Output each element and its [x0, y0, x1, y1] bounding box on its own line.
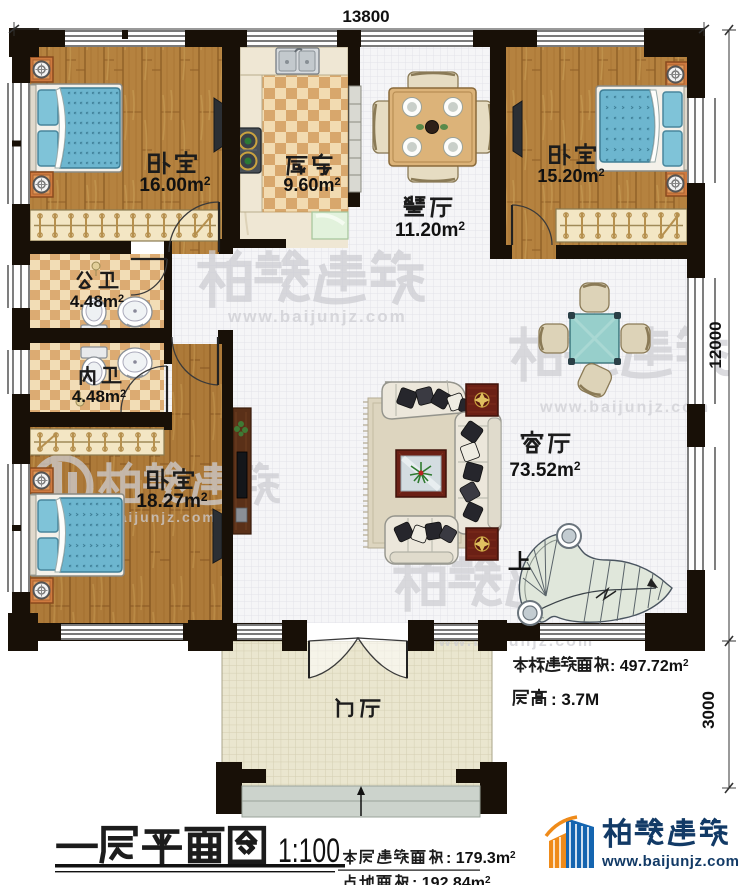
svg-text:9.60m2: 9.60m2 [283, 175, 340, 195]
svg-text:11.20m2: 11.20m2 [395, 219, 465, 241]
svg-text:4.48m2: 4.48m2 [70, 292, 124, 311]
svg-text:www.baijunjz.com: www.baijunjz.com [601, 853, 739, 870]
svg-text:4.48m2: 4.48m2 [72, 387, 126, 406]
svg-text:73.52m2: 73.52m2 [509, 459, 580, 481]
svg-text:16.00m2: 16.00m2 [139, 174, 210, 196]
svg-text:: 3.7M: : 3.7M [551, 690, 599, 709]
svg-text:: 192.84m2: : 192.84m2 [412, 875, 491, 885]
svg-text:www.baijunjz.com: www.baijunjz.com [227, 307, 407, 326]
svg-text:www.baijunjz.com: www.baijunjz.com [539, 399, 710, 416]
svg-text:15.20m2: 15.20m2 [537, 166, 604, 186]
svg-text:: 497.72m2: : 497.72m2 [610, 658, 689, 675]
svg-text:: 179.3m2: : 179.3m2 [446, 850, 516, 867]
svg-text:18.27m2: 18.27m2 [136, 490, 207, 512]
svg-text:13800: 13800 [342, 7, 389, 26]
svg-text:3000: 3000 [699, 691, 718, 729]
svg-text:12000: 12000 [706, 321, 725, 368]
